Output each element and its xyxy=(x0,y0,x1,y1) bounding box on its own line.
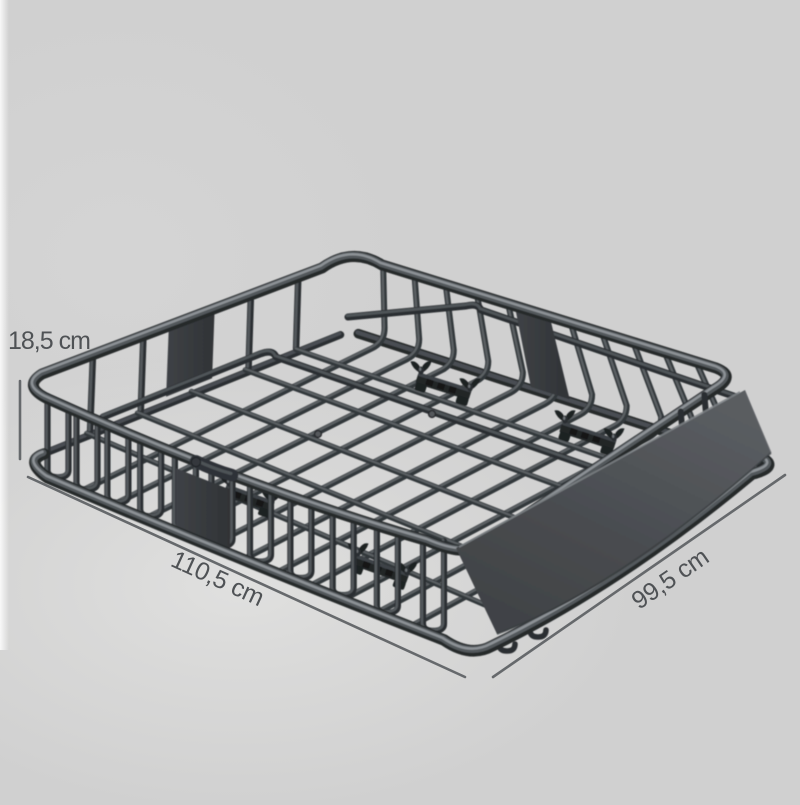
svg-text:18,5 cm: 18,5 cm xyxy=(8,327,90,355)
